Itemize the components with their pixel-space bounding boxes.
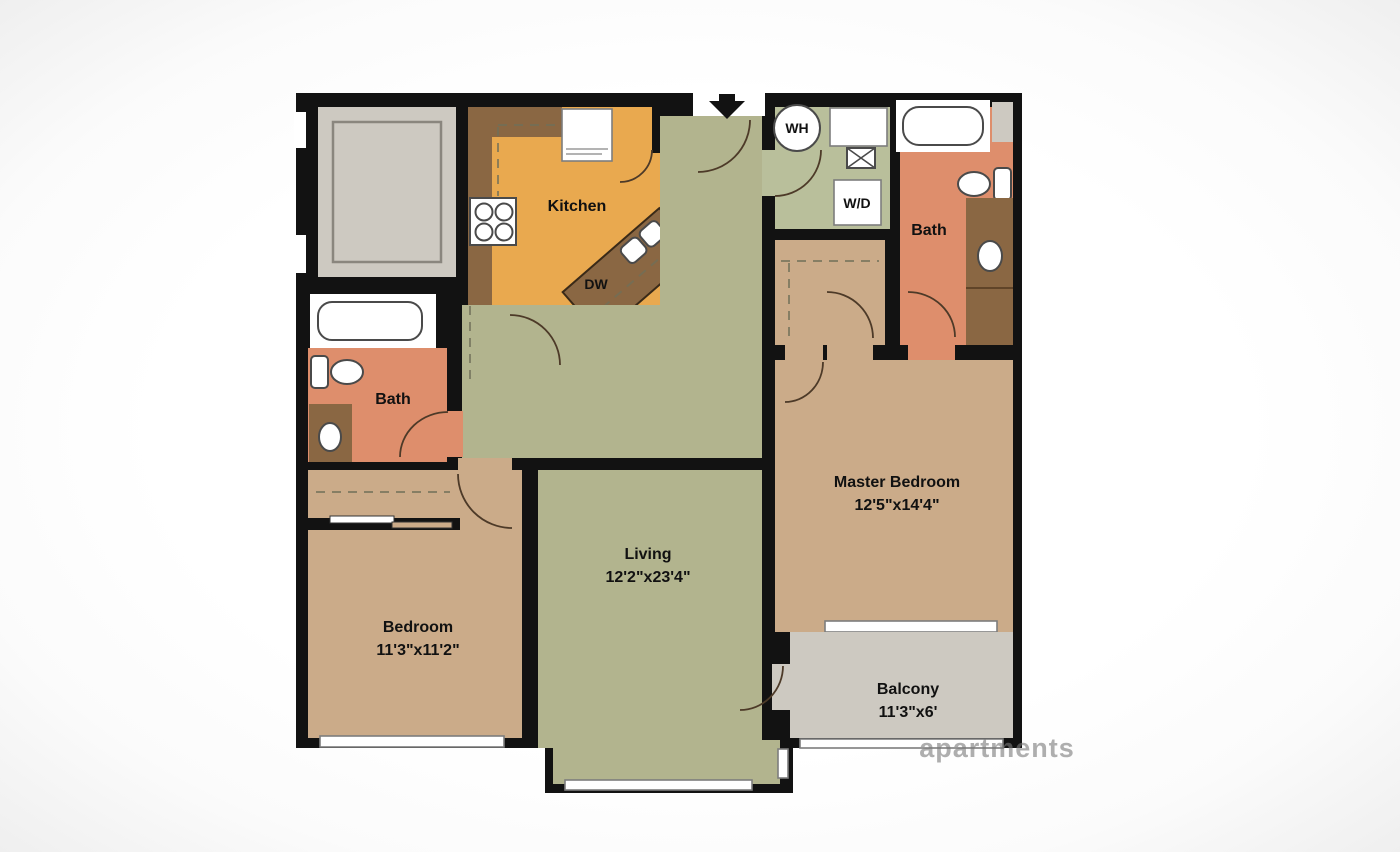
master-sink-icon (978, 241, 1002, 271)
laundry-room: WH W/D (762, 105, 890, 229)
master-bathtub-icon (903, 107, 983, 145)
floor-plan: Kitchen DW Living 12'2"x23'4" WH W/D (0, 0, 1400, 852)
master-bath-label: Bath (911, 222, 947, 239)
stair-room (294, 107, 456, 277)
hall-floor (462, 305, 762, 458)
stove-icon (470, 198, 516, 245)
bedroom-dims: 11'3"x11'2" (376, 642, 459, 659)
living-label: Living (624, 546, 671, 563)
master-closet (775, 240, 885, 360)
master-bath-doorway (908, 345, 955, 360)
balcony-dims: 11'3"x6' (879, 704, 938, 721)
master-vanity (966, 198, 1013, 345)
sliding-door-icon (392, 522, 452, 528)
laundry-doorway (762, 150, 775, 196)
floor-plan-canvas: Kitchen DW Living 12'2"x23'4" WH W/D (0, 0, 1400, 852)
master-closet-doorway (827, 345, 873, 360)
master-bedroom: Master Bedroom 12'5"x14'4" (775, 345, 1013, 632)
bedroom: Bedroom 11'3"x11'2" (308, 530, 522, 747)
bedroom-label: Bedroom (383, 619, 453, 636)
master-bedroom-window (825, 621, 997, 632)
master-bedroom-floor (775, 360, 1013, 632)
utility-box-icon (847, 148, 875, 168)
entry-hall-floor (660, 116, 762, 310)
watermark-text: apartments (919, 733, 1075, 763)
master-bedroom-doorway (785, 345, 823, 361)
master-bedroom-dims: 12'5"x14'4" (854, 497, 939, 514)
bedroom-window (320, 736, 504, 747)
master-bedroom-label: Master Bedroom (834, 474, 960, 491)
dishwasher-label: DW (584, 276, 608, 292)
bedroom-doorway (458, 458, 512, 472)
water-heater-label: WH (785, 120, 808, 136)
balcony-doorway (772, 664, 790, 710)
living-window (565, 780, 752, 790)
bathtub-icon (318, 302, 422, 340)
bath-vanity (309, 404, 352, 462)
refrigerator-icon (562, 109, 612, 161)
living-dims: 12'2"x23'4" (605, 569, 690, 586)
laundry-sink-icon (830, 108, 887, 146)
bath-label: Bath (375, 391, 411, 408)
living-bay-floor (553, 740, 780, 784)
bath-doorway (445, 411, 463, 457)
kitchen-counter-top (468, 107, 562, 137)
washer-dryer-label: W/D (843, 195, 870, 211)
master-bath: Bath (896, 100, 1013, 360)
living-side-window (778, 749, 788, 778)
sliding-door-icon (330, 516, 394, 523)
living-floor (538, 470, 762, 748)
bath-nook (992, 102, 1013, 142)
balcony-label: Balcony (877, 681, 939, 698)
kitchen-label: Kitchen (548, 198, 607, 215)
sink-icon (319, 423, 341, 451)
